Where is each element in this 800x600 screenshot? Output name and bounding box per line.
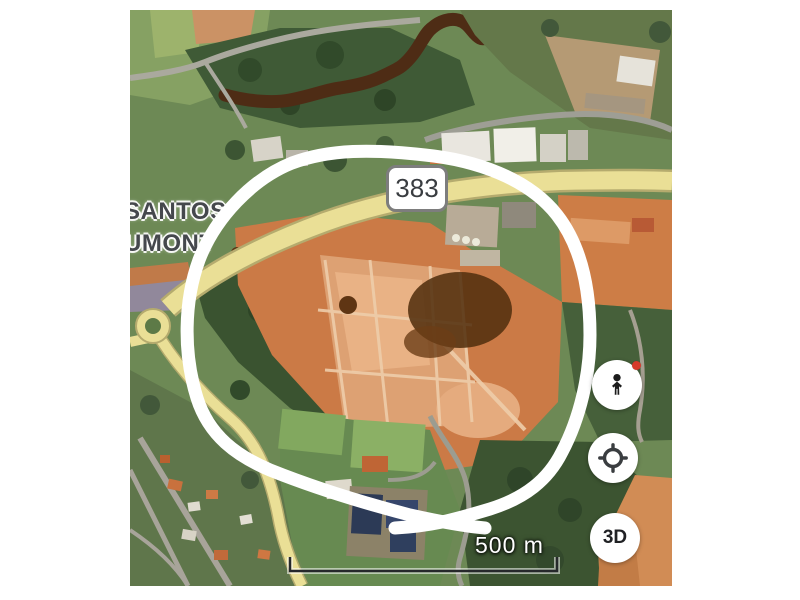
- screenshot-canvas: SANTOS UMONT 383: [0, 0, 800, 600]
- place-label-line1: SANTOS: [130, 196, 227, 228]
- satellite-imagery: [130, 10, 672, 586]
- scale-label: 500 m: [475, 532, 544, 559]
- satellite-map[interactable]: SANTOS UMONT 383: [130, 10, 672, 586]
- pegman-icon: [604, 372, 630, 398]
- 3d-button-label: 3D: [603, 527, 627, 549]
- pegman-notification-dot: [632, 361, 641, 370]
- place-label-line2: UMONT: [130, 228, 227, 260]
- route-shield: 383: [386, 165, 448, 212]
- route-shield-number: 383: [395, 173, 438, 204]
- my-location-icon: [598, 443, 628, 473]
- 3d-view-button[interactable]: 3D: [590, 513, 640, 563]
- my-location-button[interactable]: [588, 433, 638, 483]
- dirt-right: [558, 195, 672, 310]
- place-label-santos-dumont: SANTOS UMONT: [130, 196, 227, 260]
